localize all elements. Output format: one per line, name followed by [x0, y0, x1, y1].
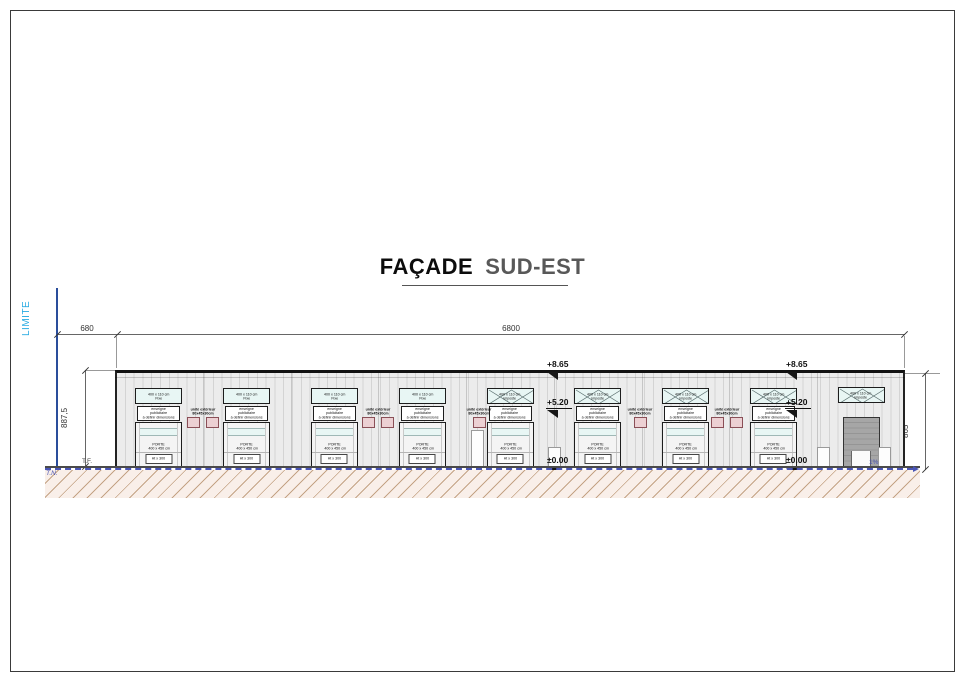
exterior-unit-label: unité extérieur80x45x30cm: [343, 402, 413, 421]
garage-door: PORTE400 x 450 cmHt x 300: [487, 422, 534, 467]
garage-door: PORTE400 x 450 cmHt x 300: [135, 422, 182, 467]
garage-door: PORTE400 x 450 cmHt x 300: [399, 422, 446, 467]
micro-text: PORTE400 x 450 cm: [149, 442, 169, 450]
garage-door: PORTE400 x 450 cmHt x 300: [223, 422, 270, 467]
level-marker: +5.20: [785, 392, 829, 418]
micro-text: 400 x 110 cmFixe: [236, 392, 257, 400]
door-height-badge: Ht x 300: [321, 454, 348, 464]
ground-hatch: [45, 470, 920, 498]
micro-text: Ht x 300: [503, 457, 516, 461]
exterior-unit-box: [381, 417, 394, 428]
level-marker: +5.20: [546, 392, 590, 418]
micro-text: 400 x 110 cmimposte: [675, 392, 696, 400]
level-label: +5.20: [546, 397, 572, 409]
micro-text: PORTE400 x 450 cm: [675, 442, 695, 450]
door-height-badge: Ht x 300: [497, 454, 524, 464]
exterior-unit-box: [206, 417, 219, 428]
door-height-badge: Ht x 300: [145, 454, 172, 464]
drawing-canvas: FAÇADESUD-EST LIMITE 680 6800 887,5 865 …: [0, 0, 965, 682]
micro-text: 400 x 110 cmimposte: [763, 392, 784, 400]
level-label: +5.20: [785, 397, 811, 409]
micro-text: 400 x 110 cmFixe: [412, 392, 433, 400]
exterior-unit-box: [362, 417, 375, 428]
micro-text: Ht x 300: [416, 457, 429, 461]
exterior-unit-label: unité extérieur80x45x30cm: [692, 402, 762, 421]
micro-text: Ht x 300: [591, 457, 604, 461]
micro-text: unité extérieur80x45x30cm: [187, 407, 219, 415]
exterior-unit-box: [711, 417, 724, 428]
micro-text: unité extérieur80x45x30cm: [362, 407, 394, 415]
micro-text: PORTE400 x 450 cm: [412, 442, 432, 450]
post-box: [878, 447, 891, 467]
post-box: [471, 430, 484, 467]
level-triangle-icon: [547, 372, 558, 380]
bay-window: 400 x 110 cmimposte: [838, 387, 885, 403]
level-marker: +8.65: [785, 354, 829, 380]
micro-text: 400 x 110 cmFixe: [324, 392, 345, 400]
exterior-unit-label: unité extérieur80x45x30cm: [168, 402, 238, 421]
door-vision-band: [578, 428, 617, 436]
exterior-unit-box: [634, 417, 647, 428]
exterior-unit-box: [730, 417, 743, 428]
garage-door: PORTE400 x 450 cmHt x 300: [311, 422, 358, 467]
micro-text: unité extérieur80x45x30cm: [711, 407, 743, 415]
micro-text: unité extérieur80x45x30cm: [624, 407, 656, 415]
garage-door: PORTE400 x 450 cmHt x 300: [662, 422, 709, 467]
door-height-badge: Ht x 300: [672, 454, 699, 464]
micro-text: PORTE400 x 450 cm: [588, 442, 608, 450]
micro-text: PORTE400 x 450 cm: [500, 442, 520, 450]
level-label: +8.65: [546, 359, 572, 371]
micro-text: Ht x 300: [328, 457, 341, 461]
level-label: +8.65: [785, 359, 811, 371]
tn-label: T.N.: [46, 470, 58, 477]
door-vision-band: [754, 428, 793, 436]
door-vision-band: [403, 428, 442, 436]
micro-text: 400 x 110 cmimposte: [499, 392, 520, 400]
micro-text: PORTE400 x 450 cm: [237, 442, 257, 450]
micro-text: Ht x 300: [152, 457, 165, 461]
door-height-badge: Ht x 300: [760, 454, 787, 464]
level-marker: +8.65: [546, 354, 590, 380]
exterior-unit-box: [473, 417, 486, 428]
micro-text: 400 x 110 cmimposte: [850, 391, 871, 399]
level-triangle-icon: [786, 372, 797, 380]
micro-text: unité extérieur80x45x30cm: [463, 407, 495, 415]
micro-text: Ht x 300: [767, 457, 780, 461]
micro-text: PORTE400 x 450 cm: [763, 442, 783, 450]
exterior-unit-box: [187, 417, 200, 428]
terrain-arrow-icon: [913, 466, 919, 472]
micro-text: 400 x 110 cmFixe: [148, 392, 169, 400]
bay-divider-line: [291, 373, 292, 467]
tf-label: T.F.: [82, 458, 92, 465]
terrain-dash-line: [45, 468, 913, 470]
level-triangle-icon: [786, 410, 797, 418]
door-height-badge: Ht x 300: [233, 454, 260, 464]
micro-text: 400 x 110 cmimposte: [587, 392, 608, 400]
micro-text: Ht x 300: [240, 457, 253, 461]
door-vision-band: [315, 428, 354, 436]
door-vision-band: [139, 428, 178, 436]
slope-label: 1%: [869, 459, 878, 466]
micro-text: Ht x 300: [679, 457, 692, 461]
door-height-badge: Ht x 300: [409, 454, 436, 464]
door-vision-band: [491, 428, 530, 436]
door-vision-band: [227, 428, 266, 436]
door-vision-band: [666, 428, 705, 436]
facade-details: 400 x 110 cmFixeenseignepublicitaireà dé…: [0, 0, 965, 682]
micro-text: PORTE400 x 450 cm: [324, 442, 344, 450]
level-triangle-icon: [547, 410, 558, 418]
